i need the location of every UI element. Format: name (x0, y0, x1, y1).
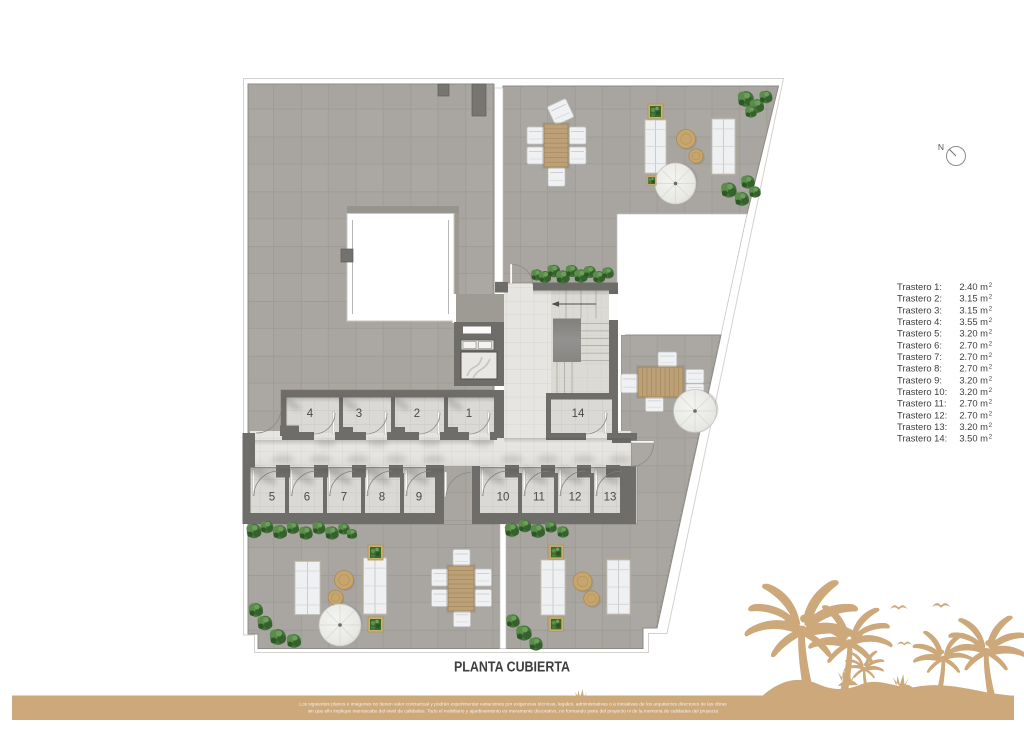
svg-text:3.50 m: 3.50 m (959, 433, 988, 444)
svg-text:Trastero 7:: Trastero 7: (897, 351, 942, 362)
svg-text:3.20 m: 3.20 m (959, 421, 988, 432)
svg-text:Trastero 6:: Trastero 6: (897, 339, 942, 350)
svg-text:2: 2 (414, 408, 420, 420)
svg-text:3.20 m: 3.20 m (959, 328, 988, 339)
svg-text:Trastero 13:: Trastero 13: (897, 421, 947, 432)
svg-text:sin que ello implique menoscab: sin que ello implique menoscabo del nive… (308, 709, 719, 715)
svg-text:PLANTA CUBIERTA: PLANTA CUBIERTA (454, 660, 570, 676)
svg-text:3.55 m: 3.55 m (959, 316, 988, 327)
svg-text:Trastero 8:: Trastero 8: (897, 363, 942, 374)
svg-text:10: 10 (497, 492, 510, 504)
svg-text:13: 13 (604, 492, 617, 504)
svg-text:7: 7 (341, 492, 347, 504)
svg-text:Trastero 3:: Trastero 3: (897, 304, 942, 315)
svg-text:Trastero 1:: Trastero 1: (897, 281, 942, 292)
svg-text:Los siguientes planos e imágen: Los siguientes planos e imágenes no tien… (299, 702, 727, 708)
svg-text:2.70 m: 2.70 m (959, 351, 988, 362)
svg-text:Trastero 14:: Trastero 14: (897, 433, 947, 444)
svg-text:Trastero 4:: Trastero 4: (897, 316, 942, 327)
svg-text:4: 4 (307, 408, 314, 420)
svg-text:11: 11 (533, 492, 545, 504)
svg-text:3.15 m: 3.15 m (959, 304, 988, 315)
svg-text:2.40 m: 2.40 m (959, 281, 988, 292)
svg-text:14: 14 (572, 408, 585, 420)
svg-text:N: N (938, 142, 944, 152)
svg-text:12: 12 (569, 492, 582, 504)
svg-text:8: 8 (379, 492, 385, 504)
svg-text:2.70 m: 2.70 m (959, 363, 988, 374)
svg-text:9: 9 (416, 492, 422, 504)
svg-text:Trastero 11:: Trastero 11: (897, 398, 947, 409)
svg-text:3.20 m: 3.20 m (959, 386, 988, 397)
svg-text:Trastero 2:: Trastero 2: (897, 293, 942, 304)
svg-text:1: 1 (466, 408, 472, 420)
svg-text:2.70 m: 2.70 m (959, 398, 988, 409)
svg-text:Trastero 9:: Trastero 9: (897, 374, 942, 385)
svg-text:2.70 m: 2.70 m (959, 409, 988, 420)
svg-text:Trastero 5:: Trastero 5: (897, 328, 942, 339)
svg-text:2.70 m: 2.70 m (959, 339, 988, 350)
svg-text:3.20 m: 3.20 m (959, 374, 988, 385)
svg-text:Trastero 12:: Trastero 12: (897, 409, 947, 420)
svg-text:3.15 m: 3.15 m (959, 293, 988, 304)
svg-text:5: 5 (269, 492, 275, 504)
svg-text:6: 6 (304, 492, 310, 504)
svg-text:Trastero 10:: Trastero 10: (897, 386, 947, 397)
